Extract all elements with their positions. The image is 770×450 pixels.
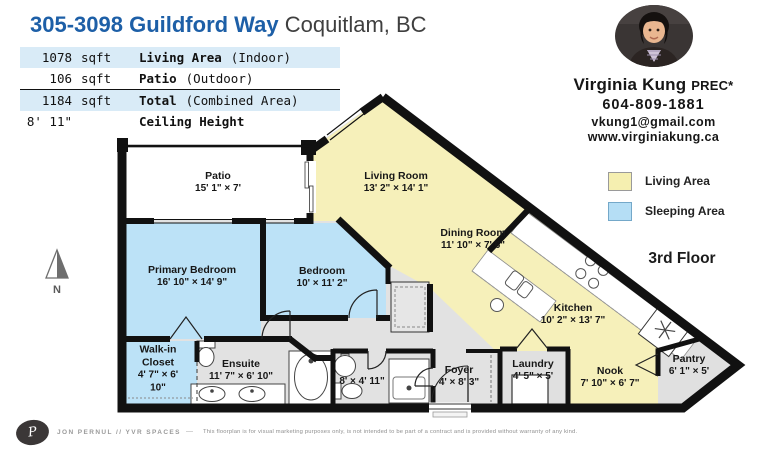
stat-row-patio: 106 sqft Patio (Outdoor) (20, 68, 340, 89)
room-dims: 11' 10" × 7' 6" (440, 240, 505, 253)
shower-icon (389, 359, 429, 403)
room-label-kitchen: Kitchen 10' 2" × 13' 7" (541, 302, 606, 328)
stat-unit: sqft (72, 50, 127, 65)
legend-label: Sleeping Area (645, 204, 725, 218)
stat-note: (Outdoor) (177, 71, 254, 86)
room-name: Bedroom (297, 265, 348, 278)
room-dims: 16' 10" × 14' 9" (148, 277, 236, 290)
room-label-walkin-closet: Walk-in Closet 4' 7" × 6' 10" (129, 343, 187, 394)
title-city: Coquitlam, BC (285, 12, 427, 37)
stat-note: (Combined Area) (177, 93, 299, 108)
room-name: Walk-in Closet (129, 343, 187, 369)
agent-name-text: Virginia Kung (574, 75, 687, 94)
stat-label: Ceiling Height (127, 114, 244, 129)
room-dims: 10' 2" × 13' 7" (541, 315, 606, 328)
room-label-ensuite: Ensuite 11' 7" × 6' 10" (209, 358, 273, 384)
stat-note: (Indoor) (222, 50, 291, 65)
legend-item-sleeping-area: Sleeping Area (608, 201, 725, 221)
room-label-pantry: Pantry 6' 1" × 5' (669, 353, 709, 379)
stat-label: Patio (127, 71, 177, 86)
legend-item-living-area: Living Area (608, 171, 710, 191)
room-name: Patio (195, 170, 241, 183)
room-dims: 15' 1" × 7' (195, 183, 241, 196)
room-name: Foyer (439, 364, 479, 377)
room-dims: 4' 5" × 5' (512, 371, 553, 384)
room-dims: 11' 7" × 6' 10" (209, 371, 273, 384)
agent-designation: PREC* (691, 78, 733, 93)
room-dims: 7' 10" × 6' 7" (581, 378, 640, 391)
room-label-nook: Nook 7' 10" × 6' 7" (581, 365, 640, 391)
agent-photo (614, 4, 694, 68)
room-label-dining-room: Dining Room 11' 10" × 7' 6" (440, 227, 505, 253)
room-dims: 4' × 8' 3" (439, 377, 479, 390)
room-name: Living Room (364, 170, 429, 183)
stat-row-living-area: 1078 sqft Living Area (Indoor) (20, 47, 340, 68)
stat-label: Living Area (127, 50, 222, 65)
room-name: Kitchen (541, 302, 606, 315)
agent-name: Virginia Kung PREC* (556, 75, 751, 95)
agent-phone: 604-809-1881 (556, 97, 751, 113)
stat-value: 106 (22, 71, 72, 86)
room-label-living-room: Living Room 13' 2" × 14' 1" (364, 170, 429, 196)
legend-label: Living Area (645, 174, 710, 188)
room-dims: 4' 7" × 6' 10" (129, 370, 187, 395)
page-title: 305-3098 Guildford Way Coquitlam, BC (30, 12, 427, 38)
room-dims: 10' × 11' 2" (297, 278, 348, 291)
disclaimer-text: This floorplan is for visual marketing p… (203, 429, 577, 435)
room-name: Ensuite (209, 358, 273, 371)
sleeping-area-swatch (608, 202, 632, 221)
stat-unit: sqft (72, 71, 127, 86)
stat-label: Total (127, 93, 177, 108)
stat-unit: sqft (72, 93, 127, 108)
dishwasher-icon (491, 299, 504, 312)
room-name: Dining Room (440, 227, 505, 240)
room-dims: 8' × 4' 11" (339, 376, 384, 389)
room-label-bathroom: 8' × 4' 11" (339, 376, 384, 389)
stat-row-total: 1184 sqft Total (Combined Area) (20, 89, 340, 111)
room-dims: 13' 2" × 14' 1" (364, 183, 429, 196)
room-name: Primary Bedroom (148, 264, 236, 277)
agent-website: www.virginiakung.ca (556, 130, 751, 144)
agent-card: Virginia Kung PREC* 604-809-1881 vkung1@… (556, 4, 751, 144)
area-stats: 1078 sqft Living Area (Indoor) 106 sqft … (20, 47, 340, 132)
floorplan-page: { "header": { "title_address": "305-3098… (0, 0, 770, 450)
bedroom-closet (391, 282, 429, 332)
stat-value: 8' 11" (22, 114, 72, 129)
living-area-swatch (608, 172, 632, 191)
north-compass-icon: N (46, 250, 68, 296)
stat-row-ceiling-height: 8' 11" Ceiling Height (20, 111, 340, 132)
room-name: Laundry (512, 358, 553, 371)
floor-label: 3rd Floor (648, 250, 715, 268)
ensuite-double-sink (191, 384, 285, 404)
room-name: Nook (581, 365, 640, 378)
room-label-foyer: Foyer 4' × 8' 3" (439, 364, 479, 390)
stat-value: 1184 (22, 93, 72, 108)
room-label-patio: Patio 15' 1" × 7' (195, 170, 241, 196)
footer-separator: — (186, 428, 193, 435)
room-label-primary-bedroom: Primary Bedroom 16' 10" × 14' 9" (148, 264, 236, 290)
room-label-bedroom: Bedroom 10' × 11' 2" (297, 265, 348, 291)
agent-email: vkung1@gmail.com (556, 115, 751, 129)
stat-value: 1078 (22, 50, 72, 65)
brand-text: JON PERNUL // YVR SPACES (57, 429, 181, 436)
room-dims: 6' 1" × 5' (669, 366, 709, 379)
room-name: Pantry (669, 353, 709, 366)
patio-slider-door (304, 161, 316, 213)
title-address: 305-3098 Guildford Way (30, 12, 279, 37)
room-label-laundry: Laundry 4' 5" × 5' (512, 358, 553, 384)
agent-headshot-illustration (614, 4, 694, 68)
svg-text:N: N (53, 284, 61, 296)
